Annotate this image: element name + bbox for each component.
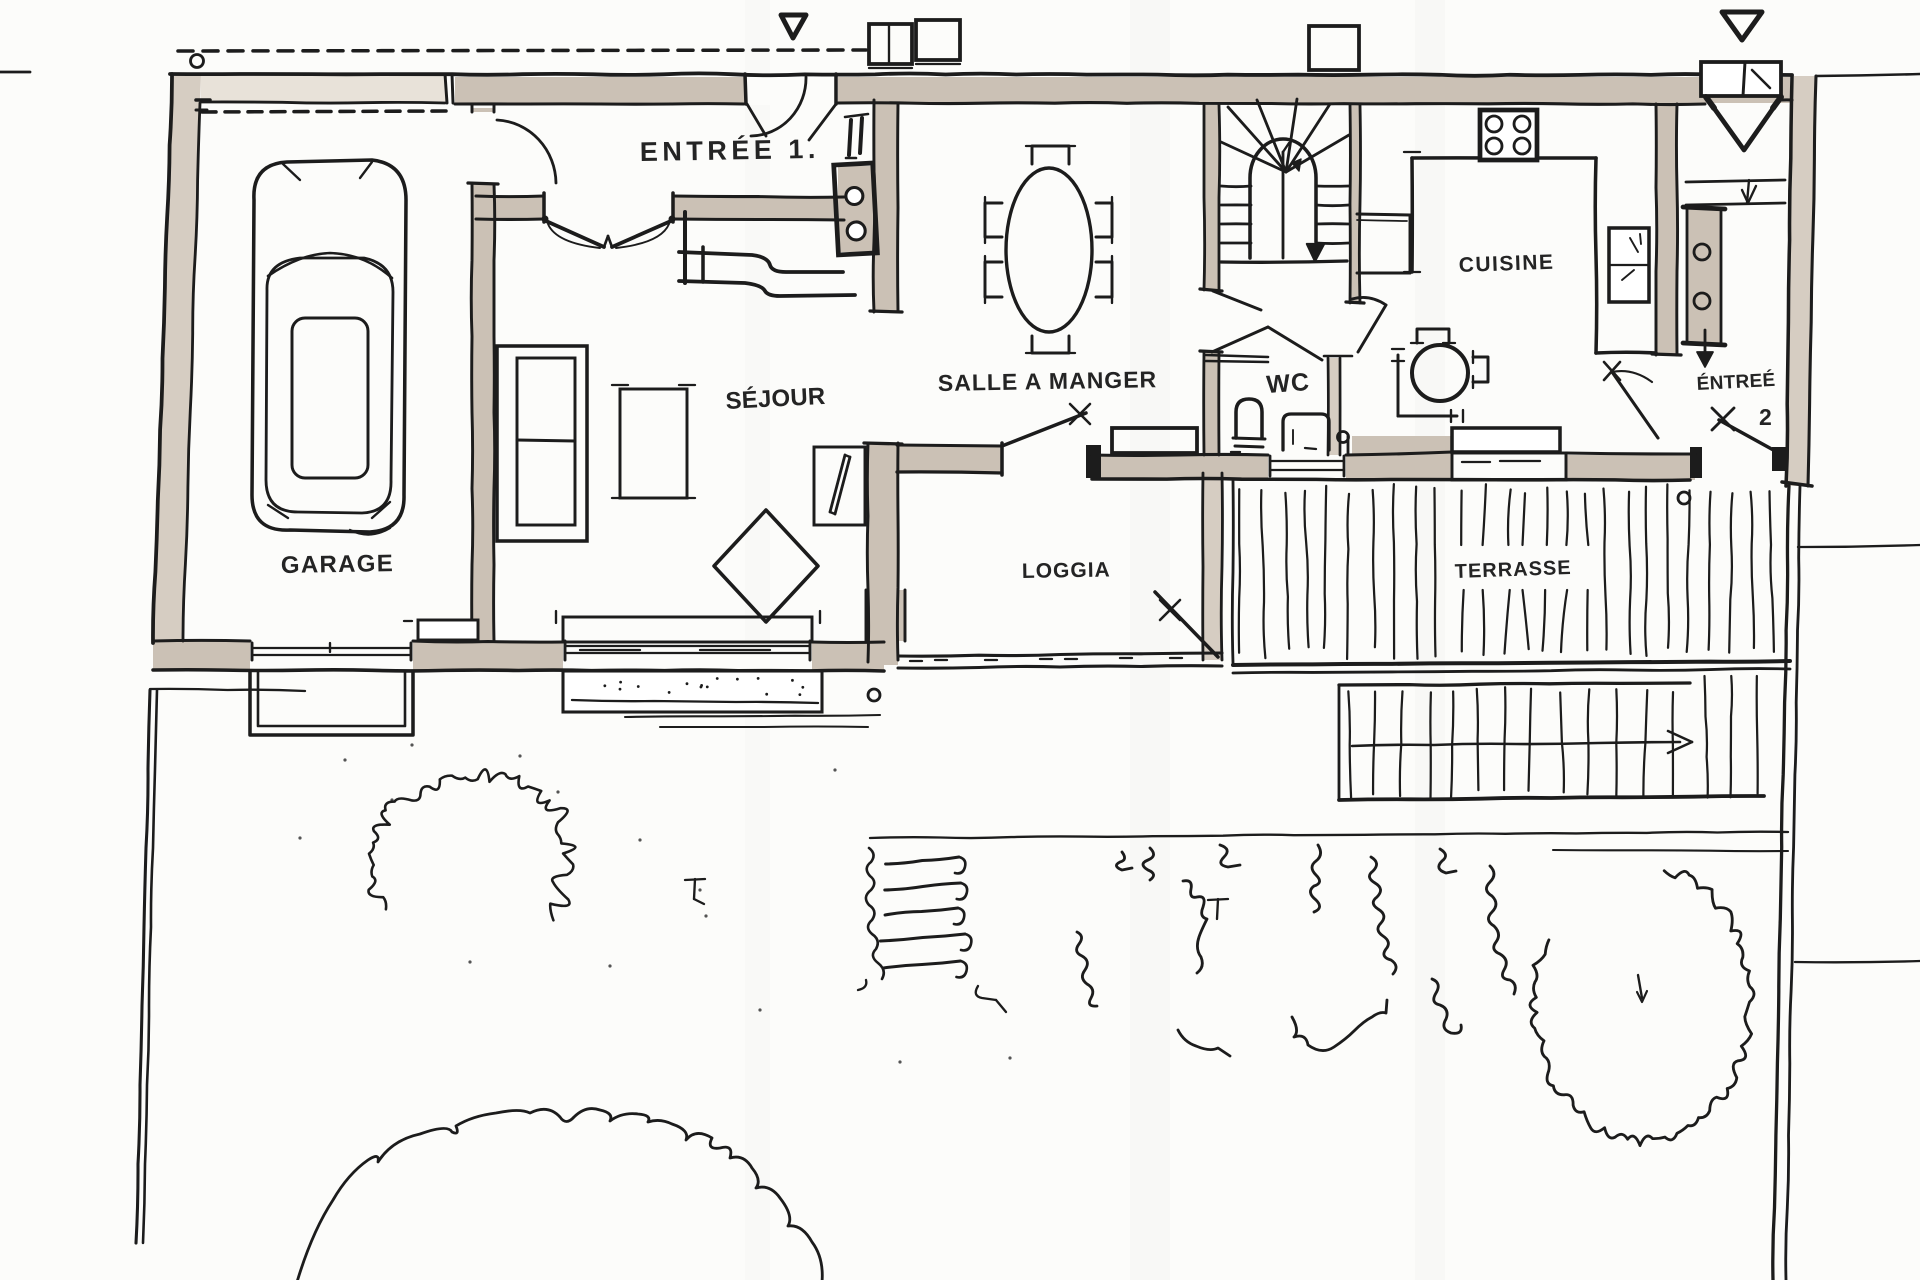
svg-text:SALLE A MANGER: SALLE A MANGER bbox=[938, 366, 1158, 396]
svg-text:SÉJOUR: SÉJOUR bbox=[725, 382, 826, 415]
svg-text:CUISINE: CUISINE bbox=[1458, 251, 1554, 277]
svg-text:TERRASSE: TERRASSE bbox=[1454, 557, 1572, 583]
svg-text:ENTRÉE 1.: ENTRÉE 1. bbox=[640, 133, 821, 167]
svg-text:GARAGE: GARAGE bbox=[281, 550, 395, 579]
svg-text:2: 2 bbox=[1759, 404, 1774, 430]
svg-text:WC: WC bbox=[1265, 368, 1311, 399]
svg-text:ÉNTREÉ: ÉNTREÉ bbox=[1696, 369, 1776, 395]
svg-text:LOGGIA: LOGGIA bbox=[1022, 558, 1111, 583]
